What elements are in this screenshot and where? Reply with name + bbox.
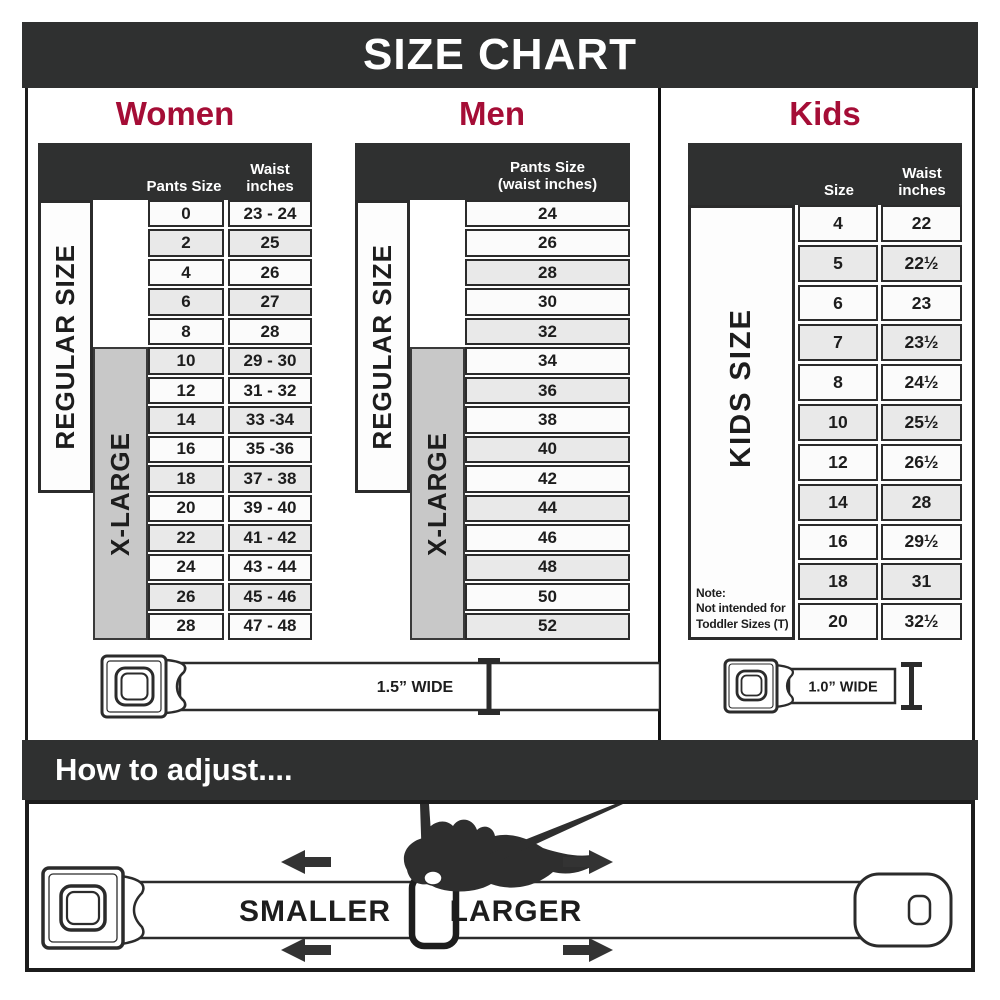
table-row: 2 25 xyxy=(148,229,312,256)
size-cell: 18 xyxy=(798,563,878,600)
waist-cell: 29½ xyxy=(881,524,962,561)
table-row: 50 xyxy=(465,583,630,610)
waist-cell: 22 xyxy=(881,205,962,242)
table-row: 5 22½ xyxy=(798,245,962,282)
pants-size-cell: 40 xyxy=(465,436,630,463)
pants-size-cell: 32 xyxy=(465,318,630,345)
waist-cell: 26½ xyxy=(881,444,962,481)
table-row: 8 28 xyxy=(148,318,312,345)
content-right-border xyxy=(972,88,975,740)
women-xlarge-box: X-LARGE xyxy=(93,347,148,640)
waist-cell: 43 - 44 xyxy=(228,554,312,581)
pants-size-cell: 4 xyxy=(148,259,224,286)
kids-rows: 4 22 5 22½ 6 23 7 23½ 8 24½ xyxy=(798,205,962,640)
pants-size-cell: 34 xyxy=(465,347,630,374)
pants-size-cell: 18 xyxy=(148,465,224,492)
waist-cell: 45 - 46 xyxy=(228,583,312,610)
table-row: 42 xyxy=(465,465,630,492)
table-row: 10 25½ xyxy=(798,404,962,441)
table-row: 36 xyxy=(465,377,630,404)
table-row: 26 45 - 46 xyxy=(148,583,312,610)
table-row: 18 37 - 38 xyxy=(148,465,312,492)
table-row: 4 22 xyxy=(798,205,962,242)
waist-cell: 23½ xyxy=(881,324,962,361)
pants-size-cell: 28 xyxy=(148,613,224,640)
kids-belt-width-label: 1.0” WIDE xyxy=(808,680,878,696)
pants-size-cell: 42 xyxy=(465,465,630,492)
pants-size-cell: 28 xyxy=(465,259,630,286)
smaller-label: SMALLER xyxy=(239,895,391,928)
waist-cell: 22½ xyxy=(881,245,962,282)
waist-cell: 23 xyxy=(881,285,962,322)
table-row: 16 29½ xyxy=(798,524,962,561)
kids-col-size: Size xyxy=(798,182,880,199)
women-heading: Women xyxy=(28,93,322,135)
pants-size-cell: 2 xyxy=(148,229,224,256)
page-title: SIZE CHART xyxy=(363,30,637,80)
table-row: 48 xyxy=(465,554,630,581)
pants-size-cell: 10 xyxy=(148,347,224,374)
waist-cell: 31 - 32 xyxy=(228,377,312,404)
table-row: 38 xyxy=(465,406,630,433)
size-cell: 12 xyxy=(798,444,878,481)
table-row: 32 xyxy=(465,318,630,345)
table-row: 28 xyxy=(465,259,630,286)
waist-cell: 37 - 38 xyxy=(228,465,312,492)
adjust-belt-illustration: SMALLER LARGER xyxy=(29,804,971,968)
size-cell: 6 xyxy=(798,285,878,322)
men-rows: 24 26 28 30 32 34 36 xyxy=(465,200,630,640)
table-row: 20 32½ xyxy=(798,603,962,640)
pants-size-cell: 24 xyxy=(465,200,630,227)
table-row: 0 23 - 24 xyxy=(148,200,312,227)
waist-cell: 41 - 42 xyxy=(228,524,312,551)
table-row: 12 31 - 32 xyxy=(148,377,312,404)
women-col-pants-size: Pants Size xyxy=(142,178,226,195)
pants-size-cell: 48 xyxy=(465,554,630,581)
waist-cell: 27 xyxy=(228,288,312,315)
kids-heading: Kids xyxy=(678,93,972,135)
waist-cell: 28 xyxy=(881,484,962,521)
table-row: 14 33 -34 xyxy=(148,406,312,433)
table-row: 30 xyxy=(465,288,630,315)
men-regular-label: REGULAR SIZE xyxy=(367,244,398,450)
larger-label: LARGER xyxy=(450,895,583,928)
pants-size-cell: 16 xyxy=(148,436,224,463)
size-cell: 4 xyxy=(798,205,878,242)
waist-cell: 39 - 40 xyxy=(228,495,312,522)
pants-size-cell: 52 xyxy=(465,613,630,640)
belt-tip-hole xyxy=(909,896,930,924)
pants-size-cell: 26 xyxy=(148,583,224,610)
table-row: 14 28 xyxy=(798,484,962,521)
kids-belt-illustration: 1.0” WIDE xyxy=(665,649,975,737)
table-row: 6 27 xyxy=(148,288,312,315)
waist-cell: 31 xyxy=(881,563,962,600)
table-row: 4 26 xyxy=(148,259,312,286)
women-regular-box: REGULAR SIZE xyxy=(38,200,93,493)
adjust-section-bar: How to adjust.... xyxy=(22,740,978,800)
table-row: 12 26½ xyxy=(798,444,962,481)
women-table-header: Pants Size Waist inches xyxy=(38,143,312,200)
pants-size-cell: 24 xyxy=(148,554,224,581)
waist-cell: 35 -36 xyxy=(228,436,312,463)
size-cell: 7 xyxy=(798,324,878,361)
men-heading: Men xyxy=(345,93,639,135)
table-row: 34 xyxy=(465,347,630,374)
table-row: 46 xyxy=(465,524,630,551)
arrow-left-icon xyxy=(281,850,331,874)
kids-col-waist: Waist inches xyxy=(882,165,962,199)
content-left-border xyxy=(25,88,28,740)
table-row: 18 31 xyxy=(798,563,962,600)
table-row: 26 xyxy=(465,229,630,256)
adjust-heading: How to adjust.... xyxy=(55,752,293,788)
size-cell: 14 xyxy=(798,484,878,521)
kids-note: Note: Not intended for Toddler Sizes (T) xyxy=(696,586,788,633)
table-row: 52 xyxy=(465,613,630,640)
men-xlarge-box: X-LARGE xyxy=(410,347,465,640)
pants-size-cell: 6 xyxy=(148,288,224,315)
men-regular-box: REGULAR SIZE xyxy=(355,200,410,493)
kids-size-box: KIDS SIZE Note: Not intended for Toddler… xyxy=(688,205,795,640)
pants-size-cell: 20 xyxy=(148,495,224,522)
kids-section-divider xyxy=(658,88,661,740)
fingertip xyxy=(424,871,442,885)
arrow-right-icon xyxy=(563,938,613,962)
women-col-waist: Waist inches xyxy=(228,161,312,195)
men-table-header: Pants Size (waist inches) xyxy=(355,143,630,200)
pants-size-cell: 38 xyxy=(465,406,630,433)
width-measure-icon xyxy=(901,662,922,710)
table-row: 24 xyxy=(465,200,630,227)
table-row: 6 23 xyxy=(798,285,962,322)
belt-tip xyxy=(855,874,951,946)
size-chart-page: SIZE CHART Women Men Kids Pants Size Wai… xyxy=(0,0,1000,1000)
size-cell: 10 xyxy=(798,404,878,441)
pants-size-cell: 44 xyxy=(465,495,630,522)
waist-cell: 32½ xyxy=(881,603,962,640)
table-row: 10 29 - 30 xyxy=(148,347,312,374)
size-cell: 16 xyxy=(798,524,878,561)
pants-size-cell: 22 xyxy=(148,524,224,551)
table-row: 44 xyxy=(465,495,630,522)
table-row: 28 47 - 48 xyxy=(148,613,312,640)
pants-size-cell: 0 xyxy=(148,200,224,227)
pants-size-cell: 50 xyxy=(465,583,630,610)
waist-cell: 25 xyxy=(228,229,312,256)
adult-belt-width-label: 1.5” WIDE xyxy=(377,679,454,696)
adult-belt-illustration: 1.5” WIDE xyxy=(30,649,660,737)
women-regular-label: REGULAR SIZE xyxy=(50,244,81,450)
table-row: 40 xyxy=(465,436,630,463)
waist-cell: 23 - 24 xyxy=(228,200,312,227)
pants-size-cell: 14 xyxy=(148,406,224,433)
table-row: 16 35 -36 xyxy=(148,436,312,463)
pants-size-cell: 46 xyxy=(465,524,630,551)
waist-cell: 47 - 48 xyxy=(228,613,312,640)
waist-cell: 33 -34 xyxy=(228,406,312,433)
pants-size-cell: 30 xyxy=(465,288,630,315)
adjust-illustration-box: SMALLER LARGER xyxy=(25,800,975,972)
waist-cell: 28 xyxy=(228,318,312,345)
table-row: 24 43 - 44 xyxy=(148,554,312,581)
size-cell: 5 xyxy=(798,245,878,282)
title-bar: SIZE CHART xyxy=(22,22,978,88)
pants-size-cell: 8 xyxy=(148,318,224,345)
kids-size-label: KIDS SIZE xyxy=(725,308,758,468)
size-cell: 8 xyxy=(798,364,878,401)
pants-size-cell: 26 xyxy=(465,229,630,256)
waist-cell: 25½ xyxy=(881,404,962,441)
waist-cell: 29 - 30 xyxy=(228,347,312,374)
waist-cell: 26 xyxy=(228,259,312,286)
size-cell: 20 xyxy=(798,603,878,640)
table-row: 20 39 - 40 xyxy=(148,495,312,522)
waist-cell: 24½ xyxy=(881,364,962,401)
table-row: 22 41 - 42 xyxy=(148,524,312,551)
table-row: 8 24½ xyxy=(798,364,962,401)
table-row: 7 23½ xyxy=(798,324,962,361)
pants-size-cell: 36 xyxy=(465,377,630,404)
pants-size-cell: 12 xyxy=(148,377,224,404)
women-rows: 0 23 - 24 2 25 4 26 6 27 8 28 xyxy=(148,200,312,640)
women-xlarge-label: X-LARGE xyxy=(105,432,136,556)
arrow-left-icon xyxy=(281,938,331,962)
kids-table-header: Size Waist inches xyxy=(688,143,962,205)
men-col-pants-size: Pants Size (waist inches) xyxy=(465,159,630,193)
men-xlarge-label: X-LARGE xyxy=(422,432,453,556)
